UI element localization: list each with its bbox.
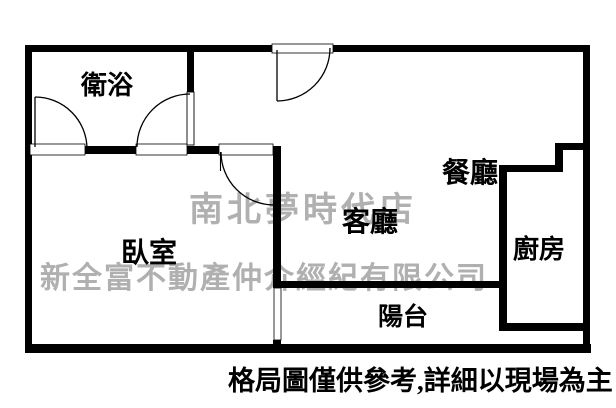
wall-kitchen-step-lower <box>499 165 563 172</box>
floor-plan: 南北夢時代店 新全富不動產仲介經紀有限公司 <box>0 0 616 408</box>
wall-outer-left <box>25 45 32 353</box>
wall-bedroom-living <box>273 150 281 288</box>
wall-outer-bottom <box>25 344 591 353</box>
wall-kitchen-left <box>499 167 507 331</box>
room-label-bathroom: 衛浴 <box>81 65 133 102</box>
opening-bedroom-door <box>219 144 273 155</box>
wall-living-balcony <box>273 281 507 288</box>
disclaimer-text: 格局圖僅供參考,詳細以現場為主 <box>228 359 613 398</box>
wall-kitchen-step-upper <box>555 143 590 150</box>
room-label-living-room: 客廳 <box>342 200 398 240</box>
wall-bathroom-right <box>187 50 194 92</box>
opening-bathroom-door-right <box>136 144 187 155</box>
wall-outer-right <box>583 45 590 349</box>
room-label-kitchen: 廚房 <box>513 229 565 266</box>
wall-outer-top-left <box>28 45 273 52</box>
room-label-balcony: 陽台 <box>378 297 428 333</box>
wall-outer-top-right <box>333 45 590 52</box>
wall-balcony-joint <box>273 340 281 348</box>
door-arc-entrance <box>277 48 330 101</box>
wall-kitchen-bottom <box>499 323 587 331</box>
opening-entrance-door <box>272 44 333 53</box>
door-leaf-bathroom-right <box>187 92 194 145</box>
door-arc-bathroom-left <box>35 97 87 149</box>
room-label-dining-room: 餐廳 <box>442 151 498 191</box>
opening-bathroom-door-left <box>30 144 85 155</box>
room-label-bedroom: 臥室 <box>121 231 177 271</box>
door-arc-bedroom <box>221 152 274 205</box>
floor-plan-drawing <box>0 0 616 408</box>
window-bedroom-balcony <box>274 288 281 340</box>
door-arc-bathroom-right <box>137 94 190 147</box>
